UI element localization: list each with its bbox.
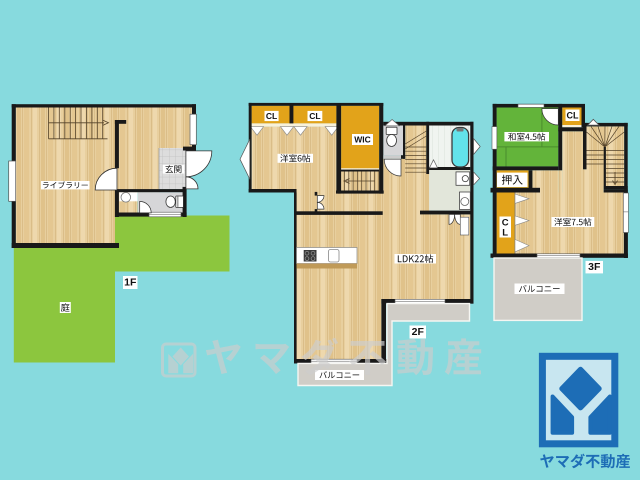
svg-text:1F: 1F — [124, 277, 137, 289]
svg-text:L: L — [502, 227, 508, 238]
svg-text:CL: CL — [309, 111, 320, 121]
svg-text:3F: 3F — [588, 261, 601, 273]
svg-text:WIC: WIC — [354, 135, 371, 145]
svg-text:CL: CL — [266, 111, 277, 121]
svg-text:2F: 2F — [412, 326, 425, 338]
svg-text:CL: CL — [567, 110, 579, 120]
